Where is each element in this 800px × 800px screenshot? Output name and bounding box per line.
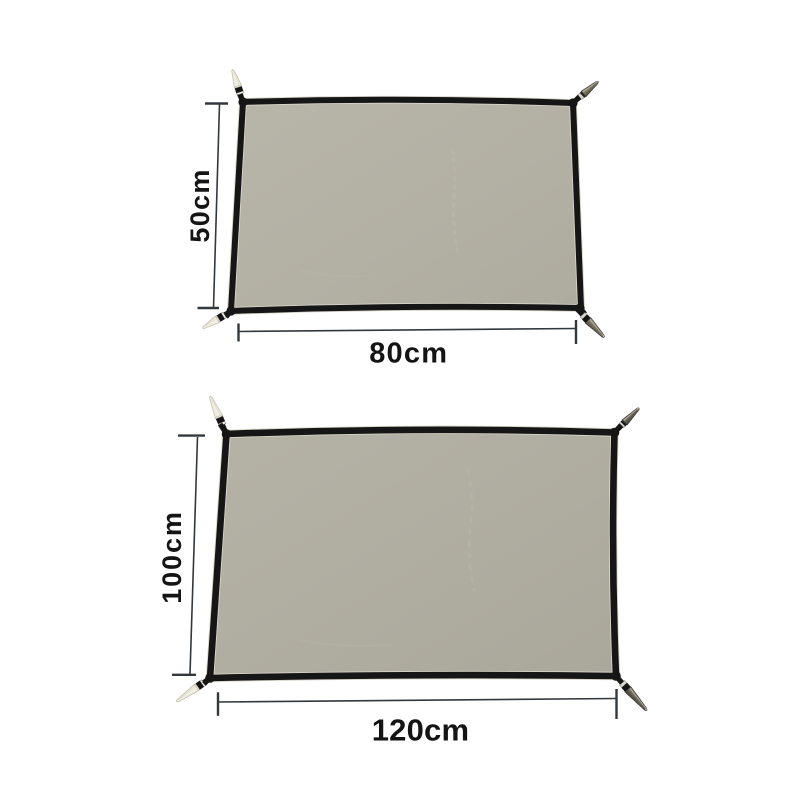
svg-text:120cm: 120cm — [372, 713, 470, 748]
svg-text:80cm: 80cm — [369, 338, 448, 370]
svg-text:100cm: 100cm — [157, 510, 187, 604]
svg-text:50cm: 50cm — [185, 168, 215, 242]
